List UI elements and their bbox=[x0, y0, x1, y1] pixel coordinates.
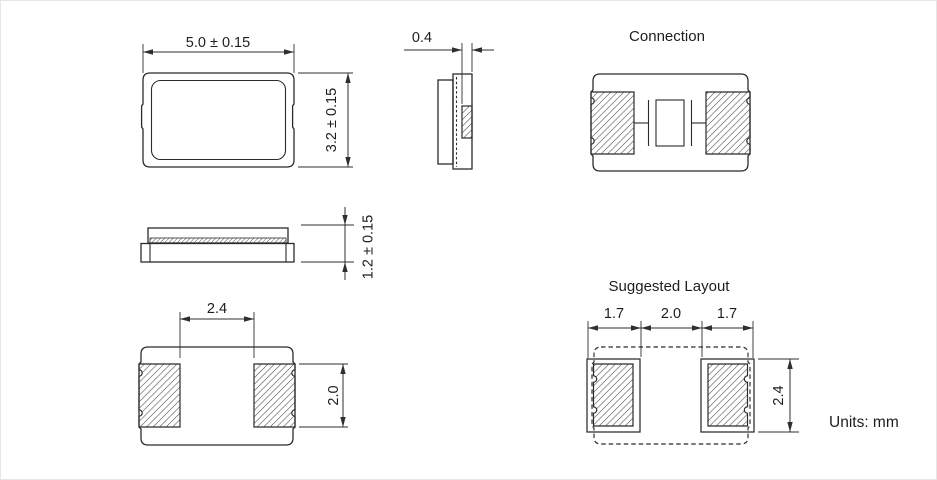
terminal-pad-left bbox=[591, 92, 634, 154]
package-outline bbox=[142, 73, 294, 167]
terminal-pad-right bbox=[254, 364, 295, 427]
end-view: 0.4 bbox=[396, 23, 506, 183]
connection-view: Connection bbox=[571, 21, 811, 186]
connection-title: Connection bbox=[629, 28, 705, 45]
suggested-layout-title: Suggested Layout bbox=[609, 278, 731, 295]
terminal-pad-right bbox=[708, 364, 748, 426]
dim-label-pad-height: 2.0 bbox=[326, 385, 342, 405]
dim-label-body-width: 5.0 ± 0.15 bbox=[186, 35, 250, 51]
top-view: 5.0 ± 0.15 3.2 ± 0.15 bbox=[121, 23, 381, 193]
dim-label-right-pad-width: 1.7 bbox=[717, 306, 737, 322]
suggested-layout-view: Suggested Layout 1.7 2.0 1.7 2.4 bbox=[576, 273, 826, 471]
bottom-view: 2.4 2.0 bbox=[121, 296, 366, 461]
crystal-symbol bbox=[634, 100, 706, 146]
dim-label-pad-gap: 2.0 bbox=[661, 306, 681, 322]
dim-label-pad-gap: 2.4 bbox=[207, 301, 227, 317]
datasheet-drawing-canvas: 5.0 ± 0.15 3.2 ± 0.15 0.4 Connection bbox=[0, 0, 937, 480]
dim-label-pad-height: 2.4 bbox=[771, 385, 787, 405]
dim-label-terminal-width: 0.4 bbox=[412, 30, 432, 46]
terminal-pad-right bbox=[706, 92, 750, 154]
seal-strip bbox=[150, 238, 286, 244]
terminal-pad-left bbox=[139, 364, 180, 427]
units-label: Units: mm bbox=[829, 414, 899, 432]
side-view: 1.2 ± 0.15 bbox=[121, 201, 401, 291]
package-lid-outline bbox=[152, 81, 286, 160]
dim-label-left-pad-width: 1.7 bbox=[604, 306, 624, 322]
terminal-pad-profile bbox=[462, 106, 472, 138]
package-base-side bbox=[141, 244, 294, 263]
dim-label-thickness: 1.2 ± 0.15 bbox=[361, 215, 377, 279]
terminal-pad-left bbox=[594, 364, 634, 426]
dim-label-body-height: 3.2 ± 0.15 bbox=[324, 88, 340, 152]
package-lid-profile bbox=[438, 80, 453, 164]
